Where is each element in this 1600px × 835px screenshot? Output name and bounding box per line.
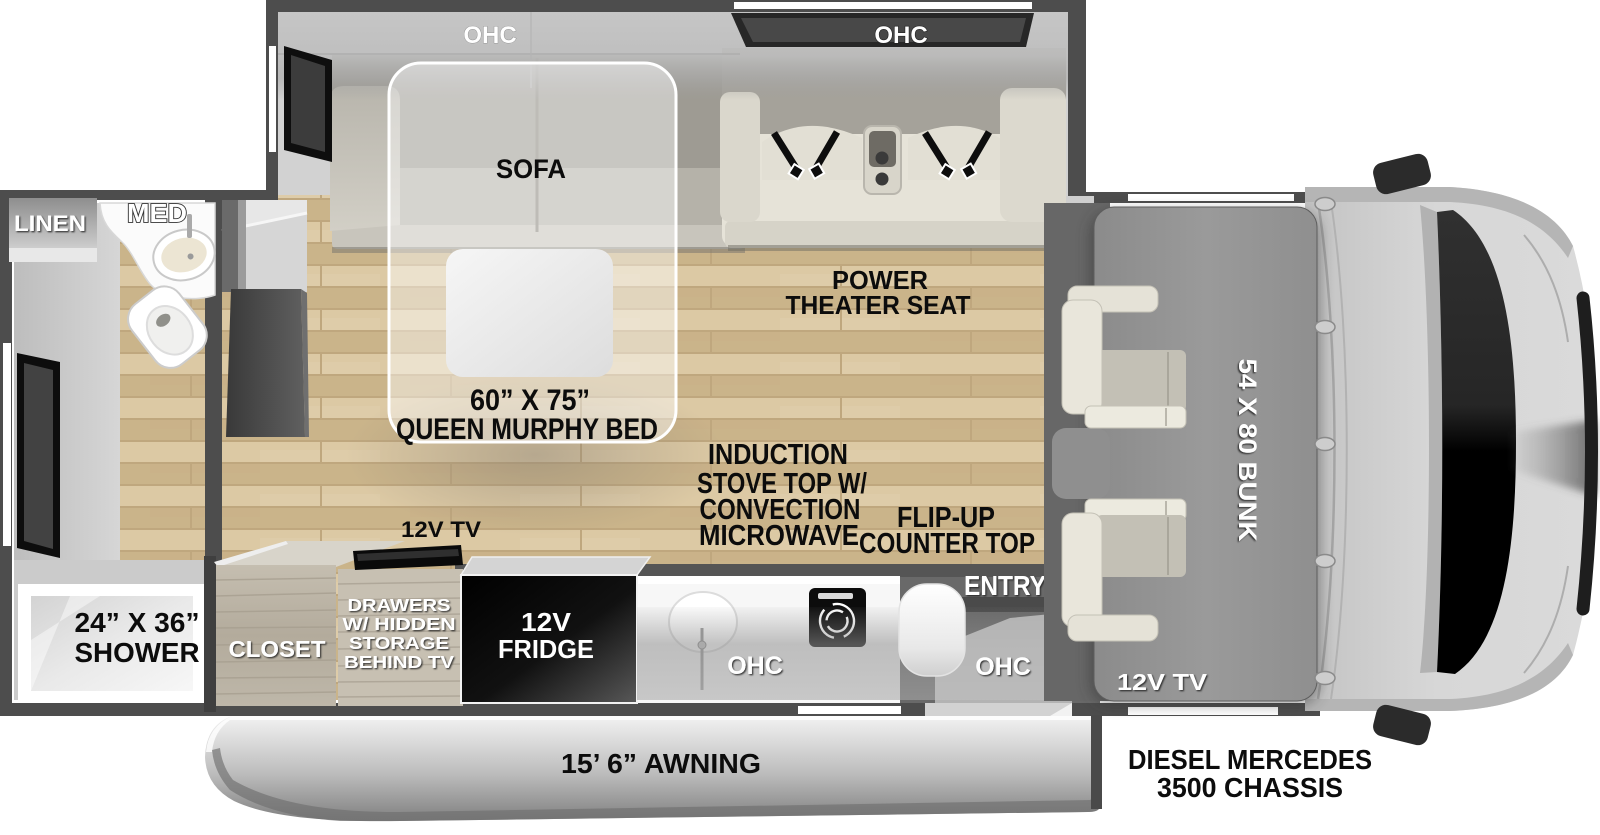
svg-text:THEATER SEAT: THEATER SEAT	[786, 290, 971, 320]
svg-text:54 X 80 BUNK: 54 X 80 BUNK	[1233, 359, 1261, 542]
svg-text:12V TV: 12V TV	[401, 517, 481, 542]
svg-text:QUEEN MURPHY BED: QUEEN MURPHY BED	[396, 413, 658, 446]
svg-text:SOFA: SOFA	[496, 154, 566, 184]
svg-text:FRIDGE: FRIDGE	[498, 634, 594, 664]
svg-text:MED: MED	[127, 198, 187, 228]
svg-text:OHC: OHC	[463, 22, 516, 49]
svg-text:OHC: OHC	[975, 653, 1031, 681]
svg-text:DRAWERS: DRAWERS	[348, 595, 451, 615]
svg-text:COUNTER TOP: COUNTER TOP	[859, 528, 1035, 560]
svg-text:CLOSET: CLOSET	[229, 636, 326, 662]
svg-text:OHC: OHC	[727, 652, 783, 680]
svg-text:INDUCTION: INDUCTION	[708, 439, 848, 471]
svg-text:ENTRY: ENTRY	[964, 570, 1046, 601]
svg-text:DIESEL MERCEDES: DIESEL MERCEDES	[1128, 744, 1372, 775]
svg-text:3500 CHASSIS: 3500 CHASSIS	[1157, 772, 1343, 803]
svg-text:SHOWER: SHOWER	[75, 637, 200, 668]
svg-text:MICROWAVE: MICROWAVE	[699, 520, 859, 552]
svg-text:W/ HIDDEN: W/ HIDDEN	[343, 614, 456, 634]
svg-text:15’ 6” AWNING: 15’ 6” AWNING	[561, 748, 761, 779]
svg-text:OHC: OHC	[874, 22, 927, 49]
svg-text:STORAGE: STORAGE	[349, 633, 449, 653]
svg-text:12V TV: 12V TV	[1117, 669, 1208, 695]
svg-text:LINEN: LINEN	[14, 211, 86, 236]
svg-text:BEHIND TV: BEHIND TV	[344, 652, 454, 672]
svg-text:12V: 12V	[521, 607, 572, 637]
svg-text:24” X 36”: 24” X 36”	[75, 607, 200, 638]
